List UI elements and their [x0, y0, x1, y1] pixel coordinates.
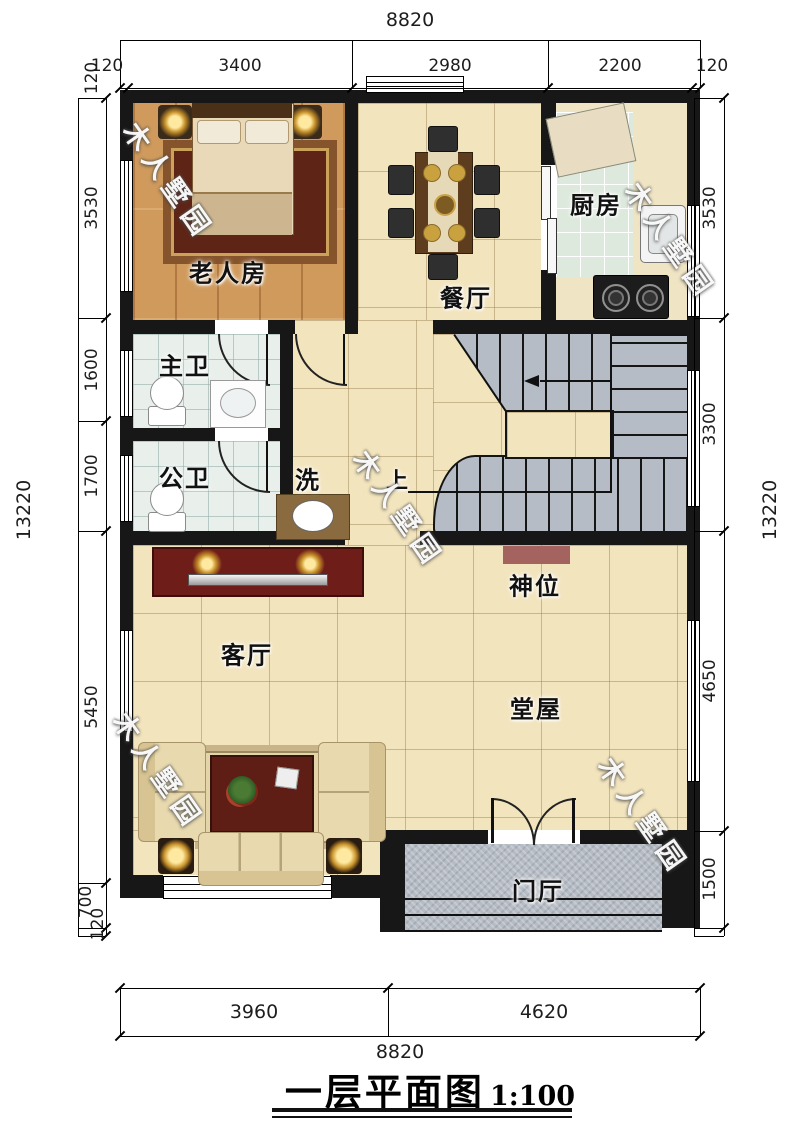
dim-left-seg-3: 1700 [82, 454, 102, 497]
dim-right-seg-1: 3300 [700, 402, 720, 445]
dining-chair-bottom [428, 254, 458, 280]
label-dining: 餐厅 [440, 279, 492, 314]
dim-right-ext [694, 318, 724, 319]
label-shrine: 神位 [509, 567, 561, 602]
dim-bottom-seg-1: 4620 [520, 1001, 568, 1023]
label-elderly-room: 老人房 [189, 254, 267, 289]
bed-pillow-right [245, 120, 289, 144]
dining-plate-4 [448, 224, 466, 242]
window-dining-top [366, 76, 464, 93]
dim-bottom-seg-0: 3960 [230, 1001, 278, 1023]
dim-bottom-rail-upper [120, 988, 700, 989]
wall-porch-top-1 [380, 830, 488, 844]
wall-c2 [420, 531, 687, 545]
dining-chair-left-1 [388, 165, 414, 195]
dim-right-rail-inner [694, 98, 695, 936]
kitchen-sliding-door-2 [547, 218, 557, 274]
floor-plan-canvas: 老人房 餐厅 厨房 主卫 公卫 洗 上 神位 客厅 堂屋 门厅 木人墅园 木人墅… [0, 0, 800, 1139]
window-masterbath-left [120, 350, 133, 417]
wash-basin [292, 500, 334, 532]
dim-bottom-rail-lower [120, 1036, 700, 1037]
dim-left-seg-2: 1600 [82, 348, 102, 391]
dim-right-seg-2: 4650 [700, 659, 720, 702]
stair-arrow-line-right [610, 380, 612, 493]
dining-chair-top [428, 126, 458, 152]
stair-arrow-line-bottom [408, 491, 612, 493]
dim-right-ext [694, 98, 724, 99]
label-master-bath: 主卫 [159, 347, 211, 382]
wall-kitchen-west-2 [541, 270, 556, 320]
dim-right-ext [694, 831, 724, 832]
stair-void [505, 410, 614, 459]
dim-left-rail-outer [78, 98, 79, 936]
dining-chair-left-2 [388, 208, 414, 238]
title-underline-thick [272, 1108, 572, 1112]
dim-left-seg-1: 3530 [82, 186, 102, 229]
dim-left-seg-0: 120 [82, 62, 102, 94]
coffee-table-plant [228, 776, 256, 804]
stair-arrow-line-top [540, 380, 612, 382]
masterbath-sink-basin [220, 388, 256, 418]
label-hall: 堂屋 [510, 690, 562, 725]
wall-b1 [133, 428, 215, 441]
dim-left-seg-4: 5450 [82, 685, 102, 728]
stair-right-flight [610, 334, 691, 459]
door-leaf-publicbath [266, 441, 268, 491]
wall-living-bottom-1 [120, 875, 163, 898]
coffee-table [210, 755, 314, 833]
entry-door-leaf-left [491, 798, 494, 843]
dim-top-seg-3: 2200 [598, 56, 641, 76]
lamp-table-left [158, 838, 194, 874]
dining-chair-right-1 [474, 165, 500, 195]
window-publicbath-left [120, 455, 133, 522]
wall-a4 [433, 320, 687, 334]
porch-pier-left [380, 844, 405, 932]
label-kitchen: 厨房 [570, 186, 622, 221]
wall-a3 [345, 320, 358, 334]
dim-top-seg-4: 120 [696, 56, 728, 76]
dim-left-seg-6: 120 [88, 908, 108, 940]
dim-top-seg-1: 3400 [218, 56, 261, 76]
dim-bottom-ext [120, 988, 121, 1036]
tv-cabinet [152, 547, 364, 597]
dining-center-dish [434, 194, 456, 216]
kitchen-burner-right [636, 284, 664, 312]
coffee-table-book [275, 767, 300, 790]
dim-right-rail-outer [724, 98, 725, 936]
lamp-table-right [326, 838, 362, 874]
bed-headboard [192, 103, 292, 118]
shrine-altar [503, 546, 570, 564]
stair-lower-flight [433, 455, 691, 535]
window-elderly-left [120, 160, 133, 292]
dim-right-seg-0: 3530 [700, 186, 720, 229]
nightstand-left [158, 105, 192, 139]
sofa-right [318, 742, 386, 842]
door-leaf-masterbath [266, 334, 268, 384]
dining-chair-right-2 [474, 208, 500, 238]
label-foyer: 门厅 [512, 872, 564, 907]
wall-bedroom-dining [345, 103, 358, 320]
dim-top-ext-mid2 [548, 40, 549, 88]
kitchen-sliding-door-1 [541, 166, 551, 220]
label-public-bath: 公卫 [159, 459, 211, 494]
sofa-main [198, 832, 324, 886]
foyer-step-edge [405, 930, 662, 932]
dim-top-seg-2: 2980 [428, 56, 471, 76]
bed-pillow-left [197, 120, 241, 144]
kitchen-burner-left [602, 284, 630, 312]
door-leaf-elderly [343, 334, 345, 384]
dim-right-ext [694, 928, 724, 929]
dim-bottom-overall: 8820 [376, 1041, 424, 1063]
dim-left-overall: 13220 [13, 480, 35, 540]
dining-plate-2 [448, 164, 466, 182]
dim-top-rail-upper [120, 40, 700, 41]
label-living: 客厅 [221, 636, 273, 671]
dining-plate-1 [423, 164, 441, 182]
dim-bottom-ext [700, 988, 701, 1036]
wall-a1 [133, 320, 215, 334]
stair-arrow-head [524, 375, 539, 387]
dim-right-seg-3: 1500 [700, 857, 720, 900]
label-wash: 洗 [295, 461, 321, 496]
dim-top-overall: 8820 [386, 9, 434, 31]
dim-left-rail-inner [106, 98, 107, 936]
dim-top-ext-mid1 [352, 40, 353, 88]
wall-a2 [268, 320, 295, 334]
dim-right-ext [694, 936, 724, 937]
wall-b2 [268, 428, 280, 441]
dining-plate-3 [423, 224, 441, 242]
foyer-step-2 [405, 914, 662, 916]
entry-door-leaf-right [572, 798, 575, 843]
tv-screen [188, 574, 328, 586]
dim-right-ext [694, 531, 724, 532]
title-underline-thin [272, 1116, 572, 1118]
dim-right-overall: 13220 [759, 480, 781, 540]
dim-bottom-ext [388, 988, 389, 1036]
dim-top-rail-lower [120, 88, 700, 89]
